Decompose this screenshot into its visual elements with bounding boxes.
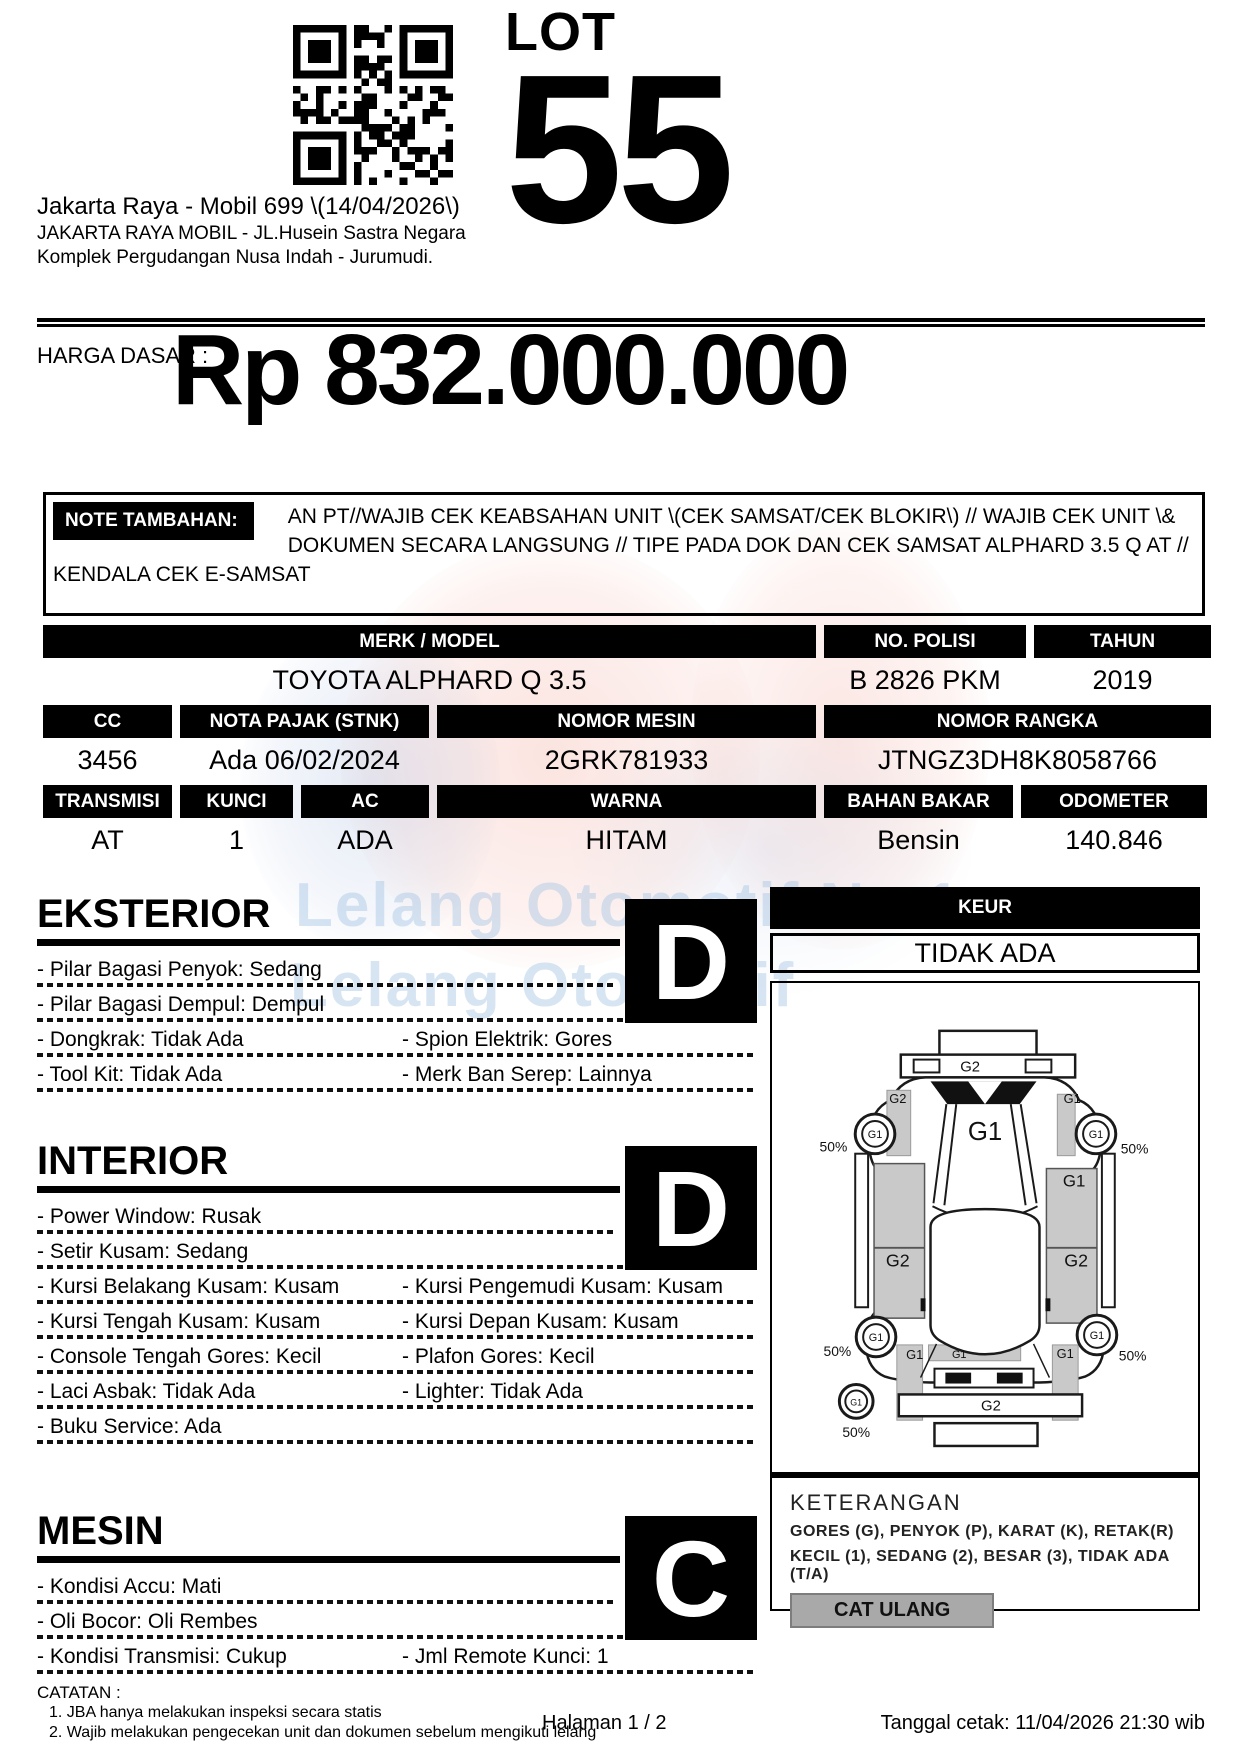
value-nota-pajak: Ada 06/02/2024 [180,738,429,785]
label-rear-fender-left: G2 [889,1091,906,1106]
col-no-polisi: NO. POLISI [824,625,1026,658]
inspection-item: - Kursi Tengah Kusam: Kusam - Kursi Depa… [37,1304,757,1333]
grade-badge-interior: D [625,1146,757,1270]
col-nomor-mesin: NOMOR MESIN [437,705,816,738]
inspection-item: - Tool Kit: Tidak Ada - Merk Ban Serep: … [37,1057,757,1086]
spec-value-row: AT 1 ADA HITAM Bensin 140.846 [43,818,1212,865]
inspection-item: - Kursi Belakang Kusam: Kusam - Kursi Pe… [37,1269,757,1298]
label-rear-fender-right: G1 [1064,1091,1081,1106]
value-ac: ADA [301,818,429,865]
label-door-right: G2 [1064,1251,1088,1271]
value-no-polisi: B 2826 PKM [824,658,1026,705]
col-odometer: ODOMETER [1021,785,1207,818]
col-tahun: TAHUN [1034,625,1211,658]
inspection-item: - Kondisi Transmisi: Cukup - Jml Remote … [37,1639,757,1668]
col-bahan-bakar: BAHAN BAKAR [824,785,1013,818]
keur-column: KEUR TIDAK ADA G2 [770,887,1200,1611]
col-nomor-rangka: NOMOR RANGKA [824,705,1211,738]
inspection-column: EKSTERIOR D - Pilar Bagasi Penyok: Sedan… [37,865,757,1743]
wheel-rear-left: G1 [855,1114,895,1154]
value-bahan-bakar: Bensin [824,818,1013,865]
tire-percent: 50% [824,1343,852,1359]
section-interior: INTERIOR D - Power Window: Rusak - Setir… [37,1140,757,1444]
keur-header: KEUR [770,887,1200,929]
header: Jakarta Raya - Mobil 699 \(14/04/2026\) … [0,0,1240,318]
value-odometer: 140.846 [1021,818,1207,865]
inspection-item: - Console Tengah Gores: Kecil - Plafon G… [37,1339,757,1368]
keterangan-title: KETERANGAN [790,1490,1198,1516]
auction-title: Jakarta Raya - Mobil 699 \(14/04/2026\) [37,192,466,222]
value-kunci: 1 [180,818,293,865]
base-price-value: Rp 832.000.000 [172,313,847,428]
value-merk-model: TOYOTA ALPHARD Q 3.5 [43,658,816,705]
inspection-item: - Buku Service: Ada [37,1409,757,1438]
spec-header-row: MERK / MODEL NO. POLISI TAHUN [43,625,1212,658]
keterangan-line2: KECIL (1), SEDANG (2), BESAR (3), TIDAK … [790,1548,1198,1584]
row-separator [37,1670,755,1674]
spec-header-row: CC NOTA PAJAK (STNK) NOMOR MESIN NOMOR R… [43,705,1212,738]
wheel-front-right: G1 [1077,1315,1117,1355]
label-rear-bumper: G2 [960,1059,980,1075]
spec-table: MERK / MODEL NO. POLISI TAHUN TOYOTA ALP… [43,625,1212,865]
col-transmisi: TRANSMISI [43,785,172,818]
section-underline [37,939,620,946]
label-roof: G1 [968,1118,1002,1146]
svg-text:G1: G1 [868,1129,883,1141]
svg-text:G1: G1 [869,1332,884,1344]
print-timestamp: Tanggal cetak: 11/04/2026 21:30 wib [881,1712,1205,1735]
section-mesin: MESIN C - Kondisi Accu: Mati - Oli Bocor… [37,1510,757,1674]
cabin-outline [931,1209,1040,1354]
note-label: NOTE TAMBAHAN: [53,502,254,540]
label-sill-left: G1 [906,1347,923,1362]
damage-panel-door-right [1046,1169,1097,1324]
spec-value-row: 3456 Ada 06/02/2024 2GRK781933 JTNGZ3DH8… [43,738,1212,785]
col-warna: WARNA [437,785,816,818]
note-box: NOTE TAMBAHAN: AN PT//WAJIB CEK KEABSAHA… [43,492,1205,616]
wheel-rear-right: G1 [1076,1114,1116,1154]
label-rocker: G1 [952,1349,967,1361]
qr-code [293,25,453,185]
section-eksterior: EKSTERIOR D - Pilar Bagasi Penyok: Sedan… [37,893,757,1092]
svg-text:G1: G1 [1089,1129,1104,1141]
auction-lot-sheet: Lelang Otomotif No.1 Lelang Otomotif Jak… [0,0,1240,1754]
inspection-item: - Dongkrak: Tidak Ada - Spion Elektrik: … [37,1022,757,1051]
col-kunci: KUNCI [180,785,293,818]
inspection-item: - Laci Asbak: Tidak Ada - Lighter: Tidak… [37,1374,757,1403]
side-bar-right [1102,1154,1115,1308]
tire-percent: 50% [842,1424,870,1440]
footer: Halaman 1 / 2 Tanggal cetak: 11/04/2026 … [37,1712,1205,1735]
page-indicator: Halaman 1 / 2 [542,1712,667,1735]
svg-text:G1: G1 [850,1397,862,1407]
col-cc: CC [43,705,172,738]
damage-panel-door-left [874,1164,925,1319]
value-tahun: 2019 [1034,658,1211,705]
label-door-right-top: G1 [1063,1171,1085,1190]
side-bar-left [855,1154,868,1308]
label-sill-right: G1 [1057,1346,1074,1361]
lot-number: 55 [505,60,805,238]
base-price: HARGA DASAR : Rp 832.000.000 [0,327,1240,487]
grade-badge-eksterior: D [625,899,757,1023]
wheel-spare: G1 [839,1385,873,1419]
col-nota-pajak: NOTA PAJAK (STNK) [180,705,429,738]
tire-percent: 50% [1121,1141,1149,1157]
wheel-front-left: G1 [856,1317,896,1357]
tire-percent: 50% [1119,1348,1147,1364]
value-transmisi: AT [43,818,172,865]
col-merk-model: MERK / MODEL [43,625,816,658]
label-front-bumper: G2 [981,1398,1001,1414]
section-underline [37,1186,620,1193]
damage-diagram-box: G2 [770,981,1200,1474]
section-underline [37,1556,620,1563]
keterangan-line1: GORES (G), PENYOK (P), KARAT (K), RETAK(… [790,1523,1198,1541]
row-separator [37,1440,755,1444]
lot-block: LOT 55 [505,4,805,238]
svg-text:G1: G1 [1090,1330,1105,1342]
tire-percent: 50% [820,1139,848,1155]
row-separator [37,1088,755,1092]
venue-line2: Komplek Pergudangan Nusa Indah - Jurumud… [37,246,466,270]
value-warna: HITAM [437,818,816,865]
spec-header-row: TRANSMISI KUNCI AC WARNA BAHAN BAKAR ODO… [43,785,1212,818]
cat-ulang-badge: CAT ULANG [790,1593,994,1628]
car-damage-diagram: G2 [772,983,1198,1472]
venue-line1: JAKARTA RAYA MOBIL - JL.Husein Sastra Ne… [37,222,466,246]
label-door-left: G2 [886,1251,910,1271]
spec-value-row: TOYOTA ALPHARD Q 3.5 B 2826 PKM 2019 [43,658,1212,705]
keterangan: KETERANGAN GORES (G), PENYOK (P), KARAT … [770,1474,1200,1611]
value-cc: 3456 [43,738,172,785]
catatan-label: CATATAN : [37,1682,757,1703]
value-nomor-mesin: 2GRK781933 [437,738,816,785]
keur-value: TIDAK ADA [770,933,1200,973]
col-ac: AC [301,785,429,818]
grade-badge-mesin: C [625,1516,757,1640]
value-nomor-rangka: JTNGZ3DH8K8058766 [824,738,1211,785]
